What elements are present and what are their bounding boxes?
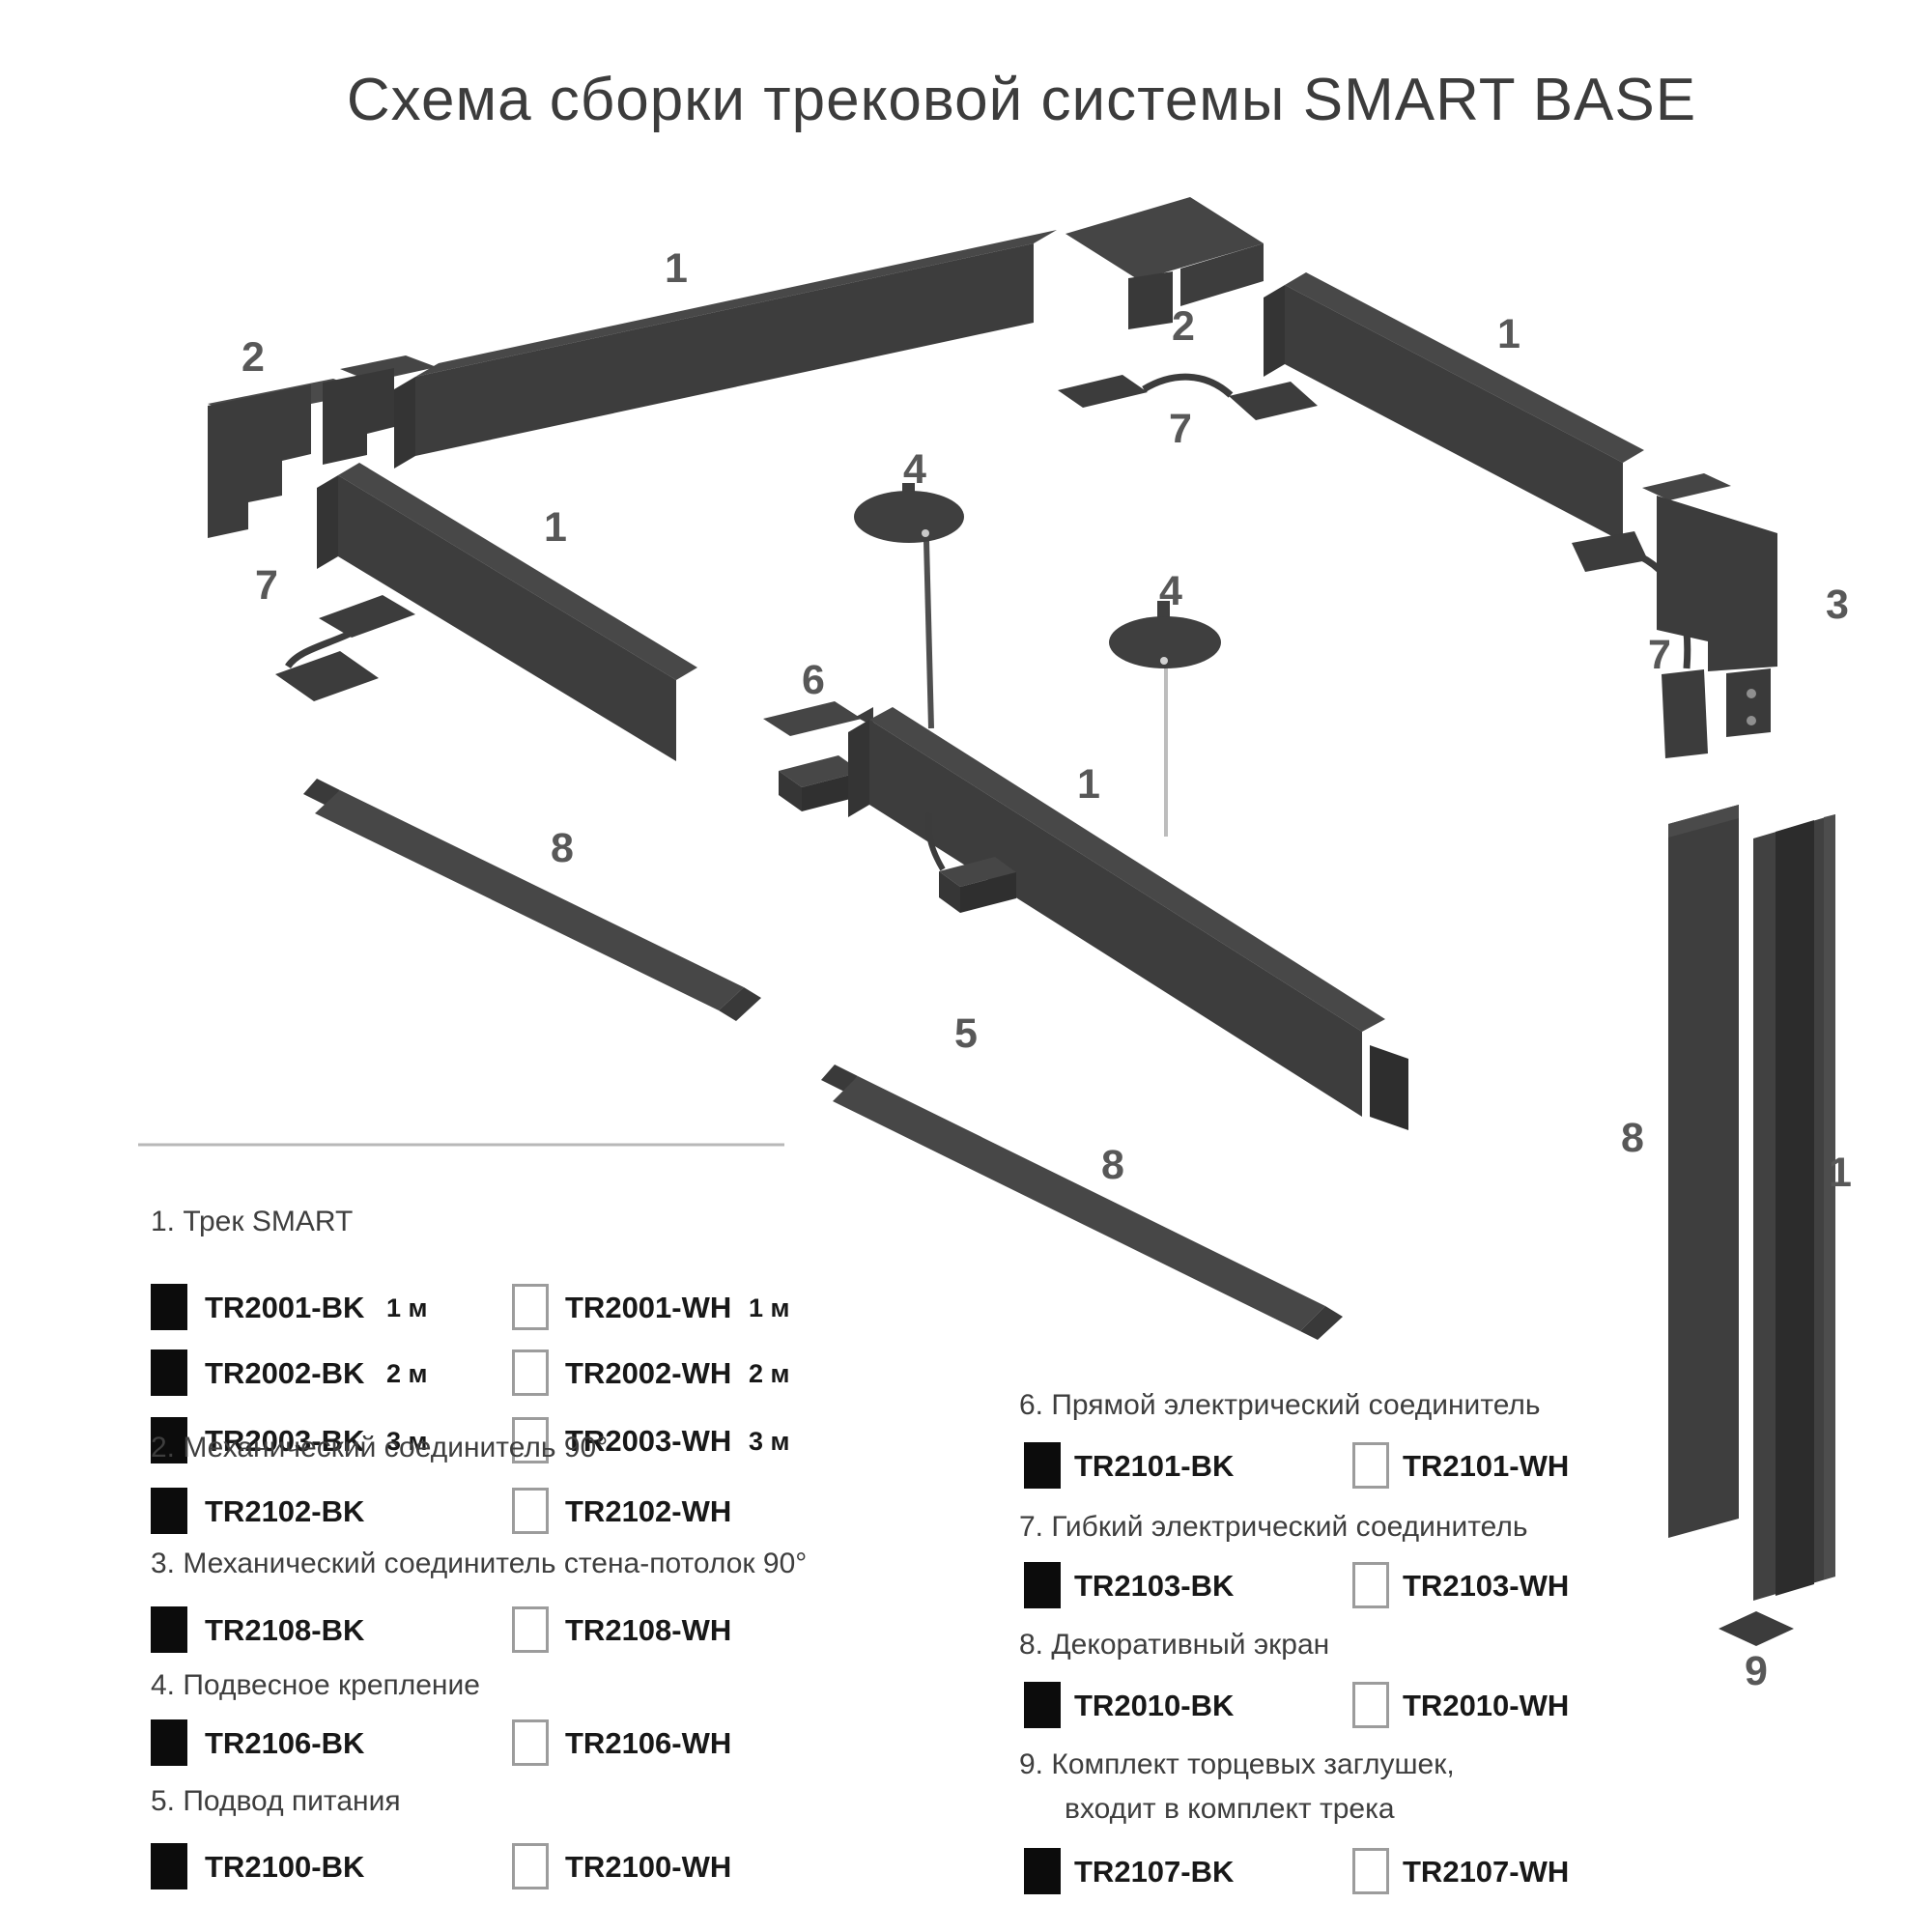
product-code-wh: TR2108-WH [565,1606,731,1655]
product-code-wh: TR2106-WH [565,1719,731,1768]
white-swatch [1352,1682,1389,1728]
flexible-connector-left [275,595,415,701]
part-label-track-center: 1 [1077,761,1100,808]
legend-row-tr2107: TR2107-BK TR2107-WH [1019,1848,1840,1896]
legend-row-tr2108: TR2108-BK TR2108-WH [151,1606,972,1655]
length-label: 3 м [749,1417,790,1465]
track-segment-center [848,707,1408,1130]
product-code-wh: TR2002-WH [565,1350,731,1398]
corner-connector-top [1065,197,1264,329]
length-label: 1 м [749,1284,790,1332]
product-code-wh: TR2103-WH [1403,1562,1569,1610]
wall-ceiling-connector [1642,473,1777,737]
decorative-screen-left [303,779,761,1021]
legend-header-straight-connector: 6. Прямой электрический соединитель [1019,1389,1541,1422]
page: { "title": "Схема сборки трековой систем… [0,0,1932,1932]
legend-header-end-caps-line1: 9. Комплект торцевых заглушек, [1019,1748,1455,1781]
part-label-track-vertical: 1 [1829,1150,1852,1196]
legend-row-tr2101: TR2101-BK TR2101-WH [1019,1442,1840,1491]
black-swatch [151,1284,187,1330]
product-code-bk: TR2102-BK [205,1488,364,1536]
legend-header-decorative-screen: 8. Декоративный экран [1019,1629,1329,1662]
legend-header-wall-ceiling-connector: 3. Механический соединитель стена-потоло… [151,1548,807,1580]
legend-header-flexible-connector: 7. Гибкий электрический соединитель [1019,1511,1527,1544]
legend-row-tr2001: TR2001-BK 1 м TR2001-WH 1 м [151,1284,972,1332]
track-segment-top-right [1264,272,1644,542]
legend-row-tr2002: TR2002-BK 2 м TR2002-WH 2 м [151,1350,972,1398]
part-label-track-left: 1 [544,504,567,551]
suspension-mount-center [854,483,964,728]
legend-row-tr2102: TR2102-BK TR2102-WH [151,1488,972,1536]
white-swatch [1352,1442,1389,1489]
black-swatch [1024,1682,1061,1728]
part-label-flex-top: 7 [1169,406,1192,452]
product-code-wh: TR2010-WH [1403,1682,1569,1730]
legend-header-track: 1. Трек SMART [151,1206,353,1238]
part-label-screen-vertical: 8 [1621,1115,1644,1161]
product-code-bk: TR2106-BK [205,1719,364,1768]
white-swatch [1352,1848,1389,1894]
product-code-wh: TR2102-WH [565,1488,731,1536]
product-code-bk: TR2100-BK [205,1843,364,1891]
product-code-wh: TR2101-WH [1403,1442,1569,1491]
black-swatch [151,1350,187,1396]
black-swatch [1024,1442,1061,1489]
length-label: 1 м [386,1284,428,1332]
black-swatch [151,1606,187,1653]
decorative-screen-vertical [1668,805,1739,1538]
product-code-wh: TR2001-WH [565,1284,731,1332]
product-code-wh: TR2107-WH [1403,1848,1569,1896]
part-label-mount-right: 4 [1159,568,1182,614]
product-code-bk: TR2101-BK [1074,1442,1234,1491]
end-cap-kit [1719,1611,1794,1646]
track-segment-top-left [394,230,1057,469]
suspension-mount-right [1109,601,1221,837]
product-code-wh: TR2100-WH [565,1843,731,1891]
black-swatch [1024,1562,1061,1608]
legend-header-suspension-mount: 4. Подвесное крепление [151,1669,480,1702]
legend-row-tr2100: TR2100-BK TR2100-WH [151,1843,972,1891]
white-swatch [512,1719,549,1766]
legend-header-power-feed: 5. Подвод питания [151,1785,401,1818]
length-label: 2 м [749,1350,790,1398]
legend-row-tr2103: TR2103-BK TR2103-WH [1019,1562,1840,1610]
part-label-corner-top: 2 [1172,303,1195,350]
part-label-track-top-right: 1 [1497,311,1520,357]
white-swatch [512,1843,549,1889]
product-code-bk: TR2107-BK [1074,1848,1234,1896]
part-label-wall-connector: 3 [1826,582,1849,628]
legend-header-end-caps-line2: входит в комплект трека [1065,1793,1395,1826]
part-label-screen-bottom: 8 [1101,1142,1124,1188]
legend-row-tr2106: TR2106-BK TR2106-WH [151,1719,972,1768]
part-label-flex-left: 7 [255,562,278,609]
black-swatch [151,1488,187,1534]
white-swatch [512,1488,549,1534]
straight-connector [763,701,862,811]
part-label-track-top-left: 1 [665,245,688,292]
legend-header-mech-connector: 2. Механический соединитель 90° [151,1432,608,1464]
product-code-bk: TR2103-BK [1074,1562,1234,1610]
product-code-bk: TR2108-BK [205,1606,364,1655]
product-code-bk: TR2002-BK [205,1350,364,1398]
legend-row-tr2010: TR2010-BK TR2010-WH [1019,1682,1840,1730]
part-label-mount-center: 4 [903,446,926,493]
white-swatch [512,1284,549,1330]
white-swatch [512,1606,549,1653]
length-label: 2 м [386,1350,428,1398]
part-label-straight-connector: 6 [802,657,825,703]
part-label-corner-left: 2 [241,334,265,381]
white-swatch [1352,1562,1389,1608]
white-swatch [512,1350,549,1396]
part-label-flex-right: 7 [1648,632,1671,678]
part-label-screen-left: 8 [551,825,574,871]
part-label-power-feed: 5 [954,1010,978,1057]
black-swatch [1024,1848,1061,1894]
product-code-bk: TR2001-BK [205,1284,364,1332]
black-swatch [151,1843,187,1889]
product-code-bk: TR2010-BK [1074,1682,1234,1730]
black-swatch [151,1719,187,1766]
